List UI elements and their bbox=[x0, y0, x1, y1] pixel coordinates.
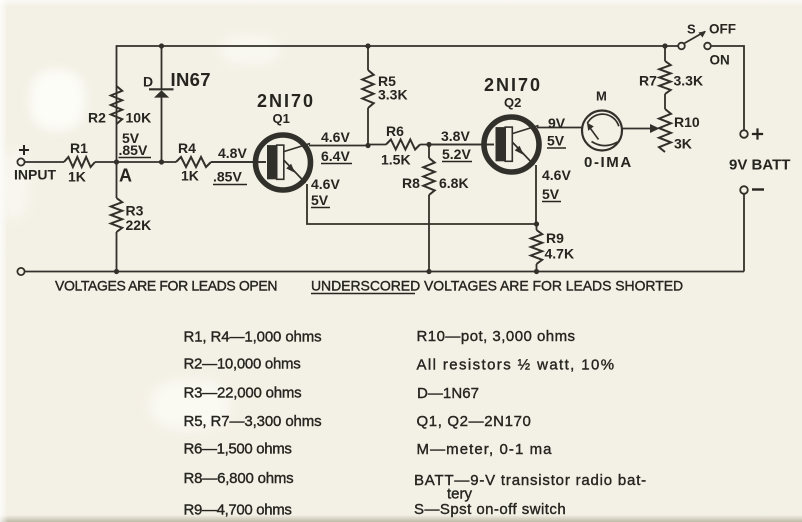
svg-text:D—1N67: D—1N67 bbox=[417, 385, 479, 402]
svg-text:.85V: .85V bbox=[119, 142, 148, 158]
svg-text:R1: R1 bbox=[70, 140, 88, 156]
svg-text:2NI70: 2NI70 bbox=[257, 91, 315, 111]
svg-text:IN67: IN67 bbox=[171, 69, 211, 90]
svg-text:A: A bbox=[119, 166, 132, 186]
svg-text:22K: 22K bbox=[126, 217, 152, 233]
svg-text:5V: 5V bbox=[311, 192, 329, 208]
svg-text:UNDERSCORED VOLTAGES ARE FOR L: UNDERSCORED VOLTAGES ARE FOR LEADS SHORT… bbox=[311, 278, 683, 294]
svg-text:4.8V: 4.8V bbox=[218, 145, 247, 161]
svg-text:S: S bbox=[687, 22, 696, 37]
svg-text:10K: 10K bbox=[126, 110, 152, 126]
svg-text:OFF: OFF bbox=[709, 22, 736, 37]
svg-text:3.3K: 3.3K bbox=[378, 87, 408, 103]
svg-text:R3—22,000 ohms: R3—22,000 ohms bbox=[184, 385, 302, 402]
svg-text:Q2: Q2 bbox=[504, 95, 521, 110]
svg-text:4.6V: 4.6V bbox=[311, 176, 340, 192]
svg-text:R10—pot, 3,000 ohms: R10—pot, 3,000 ohms bbox=[417, 328, 576, 345]
svg-text:R7: R7 bbox=[639, 73, 657, 89]
svg-text:5.2V: 5.2V bbox=[442, 146, 471, 162]
svg-text:9V: 9V bbox=[548, 115, 566, 131]
svg-text:R8: R8 bbox=[402, 175, 420, 191]
svg-text:3.8V: 3.8V bbox=[441, 128, 470, 144]
svg-text:All resistors ½ watt, 10%: All resistors ½ watt, 10% bbox=[417, 357, 616, 374]
svg-text:tery: tery bbox=[447, 486, 473, 503]
svg-text:6.4V: 6.4V bbox=[321, 148, 350, 164]
svg-text:1.5K: 1.5K bbox=[381, 152, 411, 168]
svg-text:1K: 1K bbox=[181, 168, 199, 184]
svg-text:M: M bbox=[596, 89, 607, 104]
svg-text:R9—4,700 ohms: R9—4,700 ohms bbox=[184, 502, 292, 519]
svg-text:Q1, Q2—2N170: Q1, Q2—2N170 bbox=[417, 413, 532, 430]
svg-text:3K: 3K bbox=[674, 136, 692, 152]
svg-text:M—meter, 0-1 ma: M—meter, 0-1 ma bbox=[417, 441, 553, 458]
svg-text:VOLTAGES ARE FOR LEADS OPEN: VOLTAGES ARE FOR LEADS OPEN bbox=[55, 278, 277, 294]
svg-text:4.6V: 4.6V bbox=[542, 167, 571, 183]
svg-text:R2—10,000 ohms: R2—10,000 ohms bbox=[184, 356, 301, 373]
svg-text:4.7K: 4.7K bbox=[545, 246, 575, 262]
svg-text:R10: R10 bbox=[674, 114, 700, 130]
svg-text:4.6V: 4.6V bbox=[321, 129, 350, 145]
svg-text:5V: 5V bbox=[542, 186, 560, 202]
svg-text:Q1: Q1 bbox=[273, 111, 290, 126]
svg-text:R4: R4 bbox=[178, 140, 196, 156]
svg-text:R5, R7—3,300 ohms: R5, R7—3,300 ohms bbox=[184, 413, 322, 430]
svg-text:S—Spst on-off switch: S—Spst on-off switch bbox=[414, 501, 566, 518]
svg-text:5V: 5V bbox=[547, 133, 565, 149]
svg-text:3.3K: 3.3K bbox=[674, 73, 704, 89]
svg-text:9V BATT: 9V BATT bbox=[729, 157, 790, 174]
svg-text:2NI70: 2NI70 bbox=[484, 75, 542, 95]
svg-text:D: D bbox=[143, 74, 153, 90]
svg-text:R6—1,500 ohms: R6—1,500 ohms bbox=[184, 441, 292, 458]
svg-text:1K: 1K bbox=[68, 169, 86, 185]
svg-text:R8—6,800 ohms: R8—6,800 ohms bbox=[184, 470, 294, 487]
svg-text:6.8K: 6.8K bbox=[439, 175, 469, 191]
svg-text:R6: R6 bbox=[386, 123, 404, 139]
svg-text:R9: R9 bbox=[546, 230, 564, 246]
svg-text:INPUT: INPUT bbox=[14, 167, 56, 183]
svg-text:ON: ON bbox=[710, 53, 730, 68]
svg-text:0-IMA: 0-IMA bbox=[584, 154, 633, 171]
svg-text:R1, R4—1,000 ohms: R1, R4—1,000 ohms bbox=[184, 329, 322, 346]
svg-text:R2: R2 bbox=[88, 110, 106, 126]
svg-text:.85V: .85V bbox=[213, 169, 242, 185]
